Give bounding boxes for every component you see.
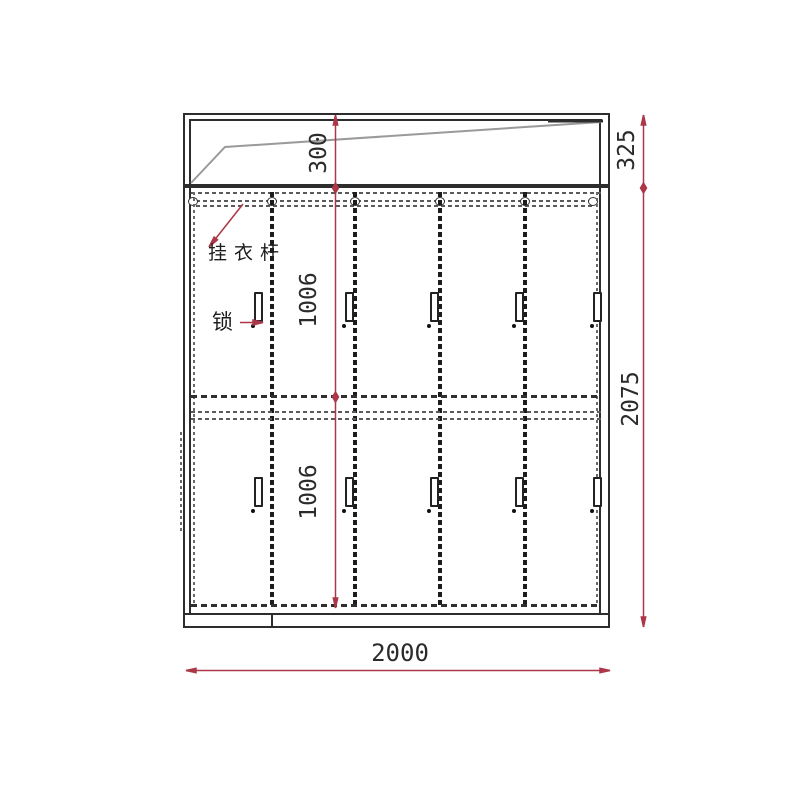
door-gap-divider (523, 192, 527, 606)
door-handle (345, 477, 354, 507)
keyhole-dot (512, 324, 516, 328)
door-handle (515, 477, 524, 507)
keyhole-dot (590, 324, 594, 328)
dim-arrow (600, 668, 610, 672)
top-cabinet-outline (183, 113, 610, 186)
keyhole-dot (427, 324, 431, 328)
door-handle (593, 477, 602, 507)
door-gap-divider (353, 192, 357, 606)
dim-text-total-width: 2000 (350, 641, 450, 665)
upper-door-bottom-line (191, 395, 601, 398)
door-handle (515, 292, 524, 322)
door-top-gap-line (191, 192, 601, 194)
dim-arrow (641, 617, 645, 627)
dim-text-upper-door-height: 1006 (297, 260, 321, 340)
door-edge-gap-line (193, 192, 195, 606)
door-handle (254, 477, 263, 507)
top-cabinet-inner-left-line (189, 119, 191, 184)
keyhole-dot (251, 509, 255, 513)
plinth-top-line (185, 613, 608, 615)
lower-door-bottom-line (191, 604, 601, 607)
dim-text-lower-door-height: 1006 (297, 452, 321, 532)
top-cabinet-inner-top-line (190, 119, 602, 121)
dim-text-total-height: 2075 (619, 359, 643, 439)
main-cabinet-inner-left-line (189, 188, 191, 614)
hanging-rod-line (196, 205, 592, 207)
keyhole-dot (342, 324, 346, 328)
door-handle (345, 292, 354, 322)
hanging-rod-line (196, 200, 592, 202)
dim-text-top-unit-height: 325 (615, 110, 639, 190)
hanging-rod-label: 挂衣杆 (208, 238, 286, 265)
dim-text-top-section-height: 300 (307, 113, 331, 193)
dim-arrow (641, 183, 647, 193)
door-handle (254, 292, 263, 322)
mid-shelf-line (191, 411, 601, 413)
door-handle (593, 292, 602, 322)
main-cabinet-inner-right-line (599, 188, 601, 614)
keyhole-dot (342, 509, 346, 513)
keyhole-dot (512, 509, 516, 513)
keyhole-dot (251, 324, 255, 328)
plinth-divider-line (271, 615, 273, 626)
dim-arrow (186, 668, 196, 672)
hinge-mark-line (180, 432, 182, 534)
door-gap-divider (438, 192, 442, 606)
mid-shelf-line (191, 418, 601, 420)
dim-arrow (641, 115, 645, 125)
wardrobe-elevation-drawing: 300 1006 1006 325 2075 2000 挂衣杆 锁 (0, 0, 800, 800)
door-edge-gap-line (596, 192, 598, 606)
keyhole-dot (590, 509, 594, 513)
top-cabinet-inner-right-line (599, 119, 601, 184)
door-handle (430, 477, 439, 507)
lock-label: 锁 (212, 306, 233, 336)
door-handle (430, 292, 439, 322)
keyhole-dot (427, 509, 431, 513)
